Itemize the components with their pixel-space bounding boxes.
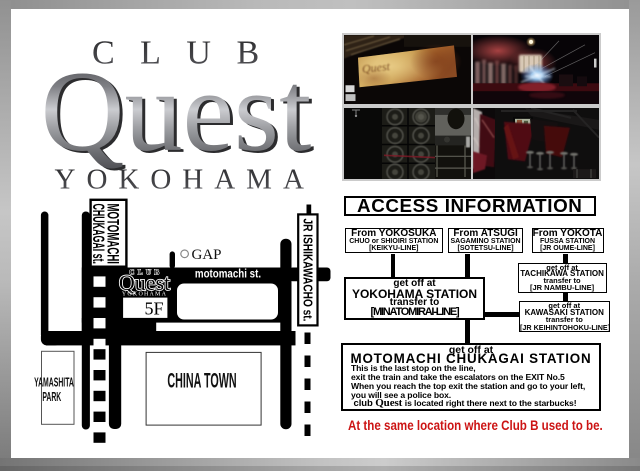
svg-text:Quest: Quest bbox=[361, 59, 391, 76]
svg-text:5F: 5F bbox=[144, 299, 163, 319]
svg-text:JR ISHIKAWACHO st.: JR ISHIKAWACHO st. bbox=[301, 219, 316, 322]
svg-text:GAP: GAP bbox=[192, 247, 222, 263]
svg-text:CHINA TOWN: CHINA TOWN bbox=[167, 369, 236, 393]
svg-text:YOKOHAMA: YOKOHAMA bbox=[55, 164, 315, 196]
svg-text:YAMASHITA: YAMASHITA bbox=[34, 377, 74, 391]
svg-text:CHUKAGAI st.: CHUKAGAI st. bbox=[89, 204, 108, 265]
svg-text:YOKOHAMA: YOKOHAMA bbox=[122, 291, 167, 297]
svg-text:motomachi st.: motomachi st. bbox=[195, 268, 261, 281]
svg-text:Quest: Quest bbox=[41, 48, 312, 176]
svg-text:PARK: PARK bbox=[42, 391, 61, 405]
